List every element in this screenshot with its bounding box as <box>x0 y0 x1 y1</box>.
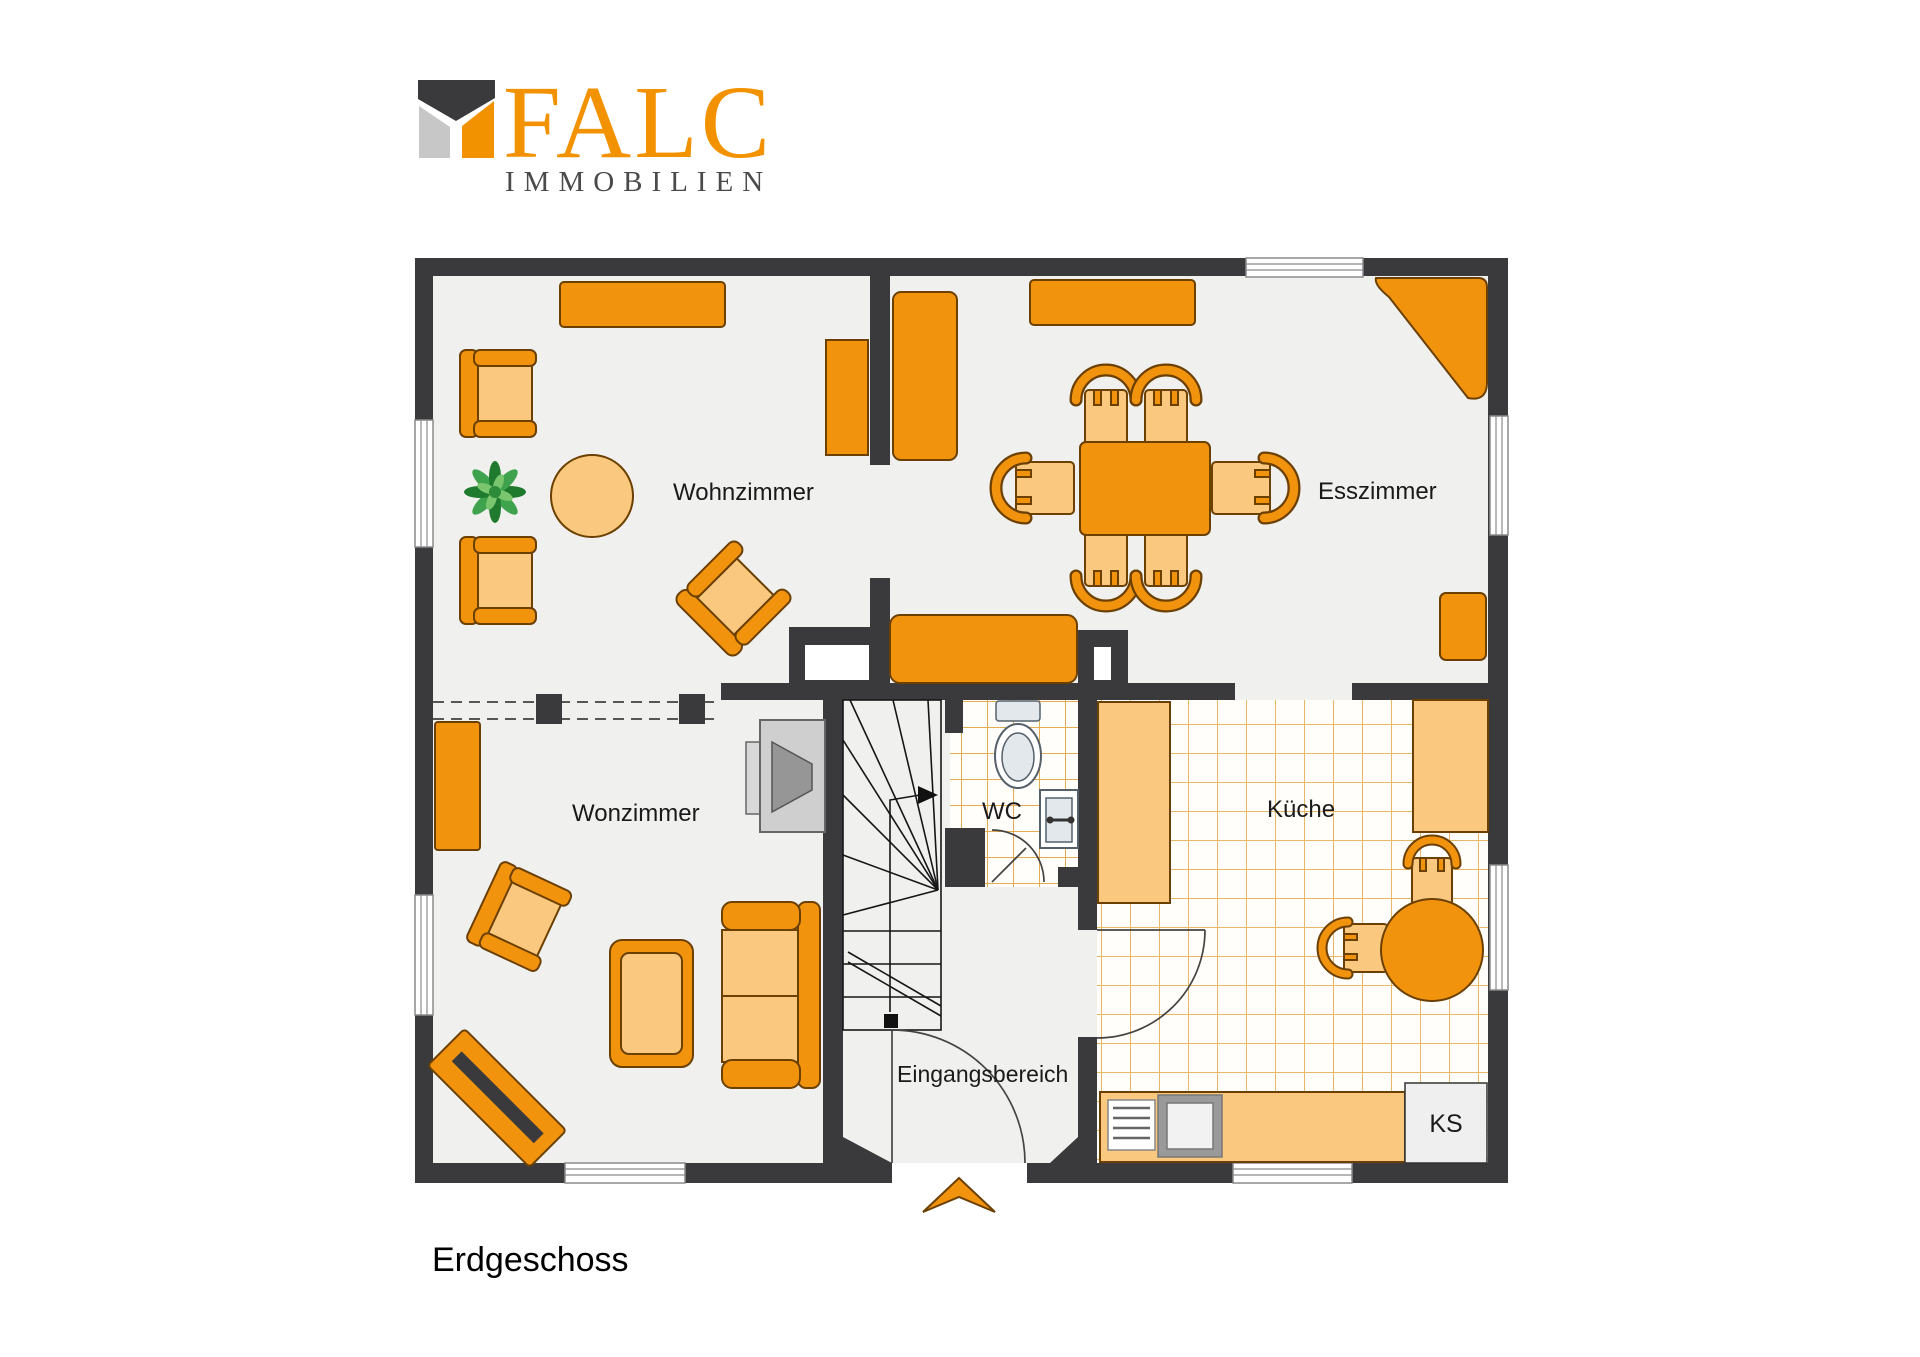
coffee-table-top <box>621 953 682 1054</box>
brand-logo: FALC IMMOBILIEN <box>418 65 773 198</box>
toilet-tank <box>996 701 1040 721</box>
chair-back-post <box>1255 497 1270 504</box>
chair-back-post <box>1171 390 1178 405</box>
chair-seat <box>1145 390 1187 448</box>
kitchen-round-table <box>1381 899 1483 1001</box>
window-right-kueche <box>1490 865 1508 990</box>
sink-basin <box>1167 1103 1213 1149</box>
round-side-table <box>551 455 633 537</box>
chair-back-post <box>1016 470 1031 477</box>
window-frame <box>415 420 433 547</box>
wall-stub-stairs-wc <box>945 697 963 733</box>
stair-start-marker <box>884 1014 898 1028</box>
chair-back-post <box>1111 571 1118 586</box>
counter-right <box>1413 700 1488 832</box>
armchair-armrest <box>474 608 536 624</box>
wall-horizontal-mid <box>721 683 1235 700</box>
floorplan-drawing: FALC IMMOBILIEN <box>0 0 1920 1357</box>
chair-back-post <box>1344 954 1357 960</box>
wall-wc-bottom-left <box>945 828 985 887</box>
floorplan-page: FALC IMMOBILIEN <box>0 0 1920 1357</box>
wall-divider-upper <box>870 276 890 465</box>
armchair-armrest <box>474 350 536 366</box>
chair-seat <box>1085 390 1127 448</box>
sink-faucet-knob <box>1068 817 1075 824</box>
chair-back-post <box>1111 390 1118 405</box>
sideboard-top <box>560 282 725 327</box>
label-kueche: Küche <box>1267 796 1335 823</box>
chair-seat <box>1085 528 1127 586</box>
window-top-esszimmer <box>1246 258 1363 277</box>
sofa-armrest <box>722 1060 800 1088</box>
chair-back-post <box>1171 571 1178 586</box>
armchair-2 <box>460 537 536 624</box>
kitchen-sink-unit <box>1108 1095 1222 1157</box>
sideboard-left <box>435 722 480 850</box>
counter-left <box>1098 702 1170 903</box>
wall-wc-bottom-right <box>1058 867 1078 887</box>
window-right-esszimmer <box>1490 416 1508 535</box>
label-esszimmer: Esszimmer <box>1318 478 1437 505</box>
chair-back-post <box>1255 470 1270 477</box>
wall-kitchen-top-right <box>1352 683 1488 700</box>
window-frame <box>1490 416 1508 535</box>
sofa-seat <box>722 996 802 1062</box>
chair-back-post <box>1438 858 1444 871</box>
fridge: KS <box>1405 1083 1487 1163</box>
chair-back-post <box>1016 497 1031 504</box>
post-2 <box>679 694 705 724</box>
label-wohnzimmer: Wohnzimmer <box>673 479 814 506</box>
plant <box>464 461 526 523</box>
counter-bottom <box>1100 1092 1405 1162</box>
chimney-left-shaft <box>805 645 869 680</box>
window-frame <box>565 1163 685 1183</box>
window-frame <box>1233 1163 1352 1183</box>
brand-logo-icon <box>418 80 495 158</box>
wall-kitchen-left-lower <box>1078 1037 1097 1163</box>
sofa <box>722 902 820 1088</box>
chair-seat <box>1145 528 1187 586</box>
chair-back-post <box>1344 934 1357 940</box>
window-frame <box>1490 865 1508 990</box>
chimney-right-shaft <box>1094 647 1111 680</box>
shelf-at-divider <box>826 340 868 455</box>
tall-cabinet <box>893 292 957 460</box>
window-bottom-kueche <box>1233 1163 1352 1183</box>
chair-back-post <box>1154 571 1161 586</box>
armchair-seat <box>476 364 532 423</box>
armchair-1 <box>460 350 536 437</box>
window-frame <box>1246 258 1363 277</box>
brand-name: FALC <box>503 65 773 180</box>
sideboard-esszimmer <box>1030 280 1195 325</box>
chair-back-post <box>1420 858 1426 871</box>
sofa-armrest <box>722 902 800 930</box>
fridge-label: KS <box>1429 1110 1462 1138</box>
chair-back-post <box>1154 390 1161 405</box>
window-left-wohnzimmer <box>415 420 433 547</box>
brand-subtitle: IMMOBILIEN <box>505 166 772 198</box>
floor-title: Erdgeschoss <box>432 1241 629 1279</box>
coffee-table <box>610 940 693 1067</box>
label-wc: WC <box>982 798 1022 825</box>
toilet <box>995 701 1041 788</box>
sofa-seat <box>722 930 802 996</box>
entrance-arrow-icon <box>923 1178 995 1212</box>
toilet-bowl-inner <box>1002 733 1034 781</box>
armchair-armrest <box>474 537 536 553</box>
wall-kitchen-left-upper <box>1078 700 1097 930</box>
dining-table <box>1080 442 1210 535</box>
post-1 <box>536 694 562 724</box>
window-left-wonzimmer <box>415 895 433 1015</box>
chair-back-post <box>1094 571 1101 586</box>
armchair-seat <box>476 551 532 610</box>
wc-sink <box>1040 790 1078 848</box>
bench <box>890 615 1077 683</box>
sink-faucet-knob <box>1047 817 1054 824</box>
window-bottom-wonzimmer <box>565 1163 685 1183</box>
chair-back-post <box>1094 390 1101 405</box>
sofa-back <box>798 902 820 1088</box>
label-wonzimmer: Wonzimmer <box>572 800 700 827</box>
label-eingangsbereich: Eingangsbereich <box>897 1061 1068 1087</box>
wall-cabinet-right <box>1440 593 1486 660</box>
window-frame <box>415 895 433 1015</box>
armchair-armrest <box>474 421 536 437</box>
plant-center <box>489 486 501 498</box>
